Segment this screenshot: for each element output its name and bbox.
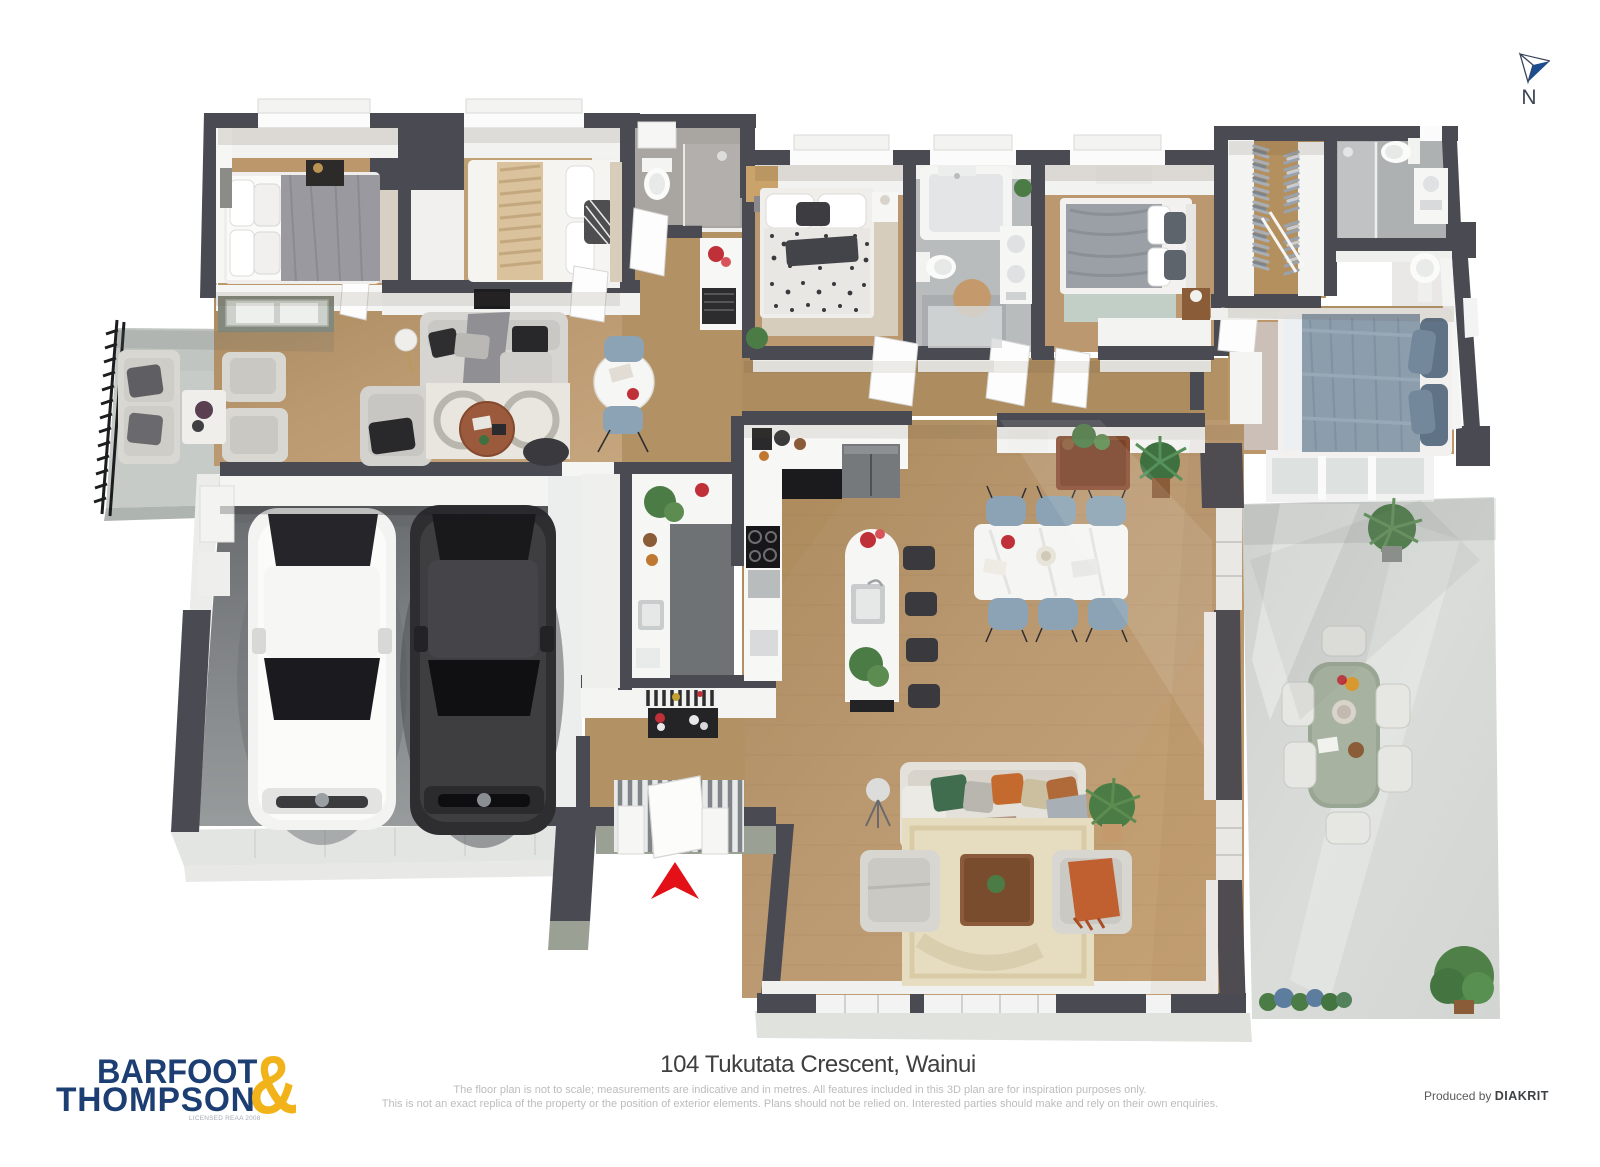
svg-text:N: N — [1521, 86, 1536, 109]
